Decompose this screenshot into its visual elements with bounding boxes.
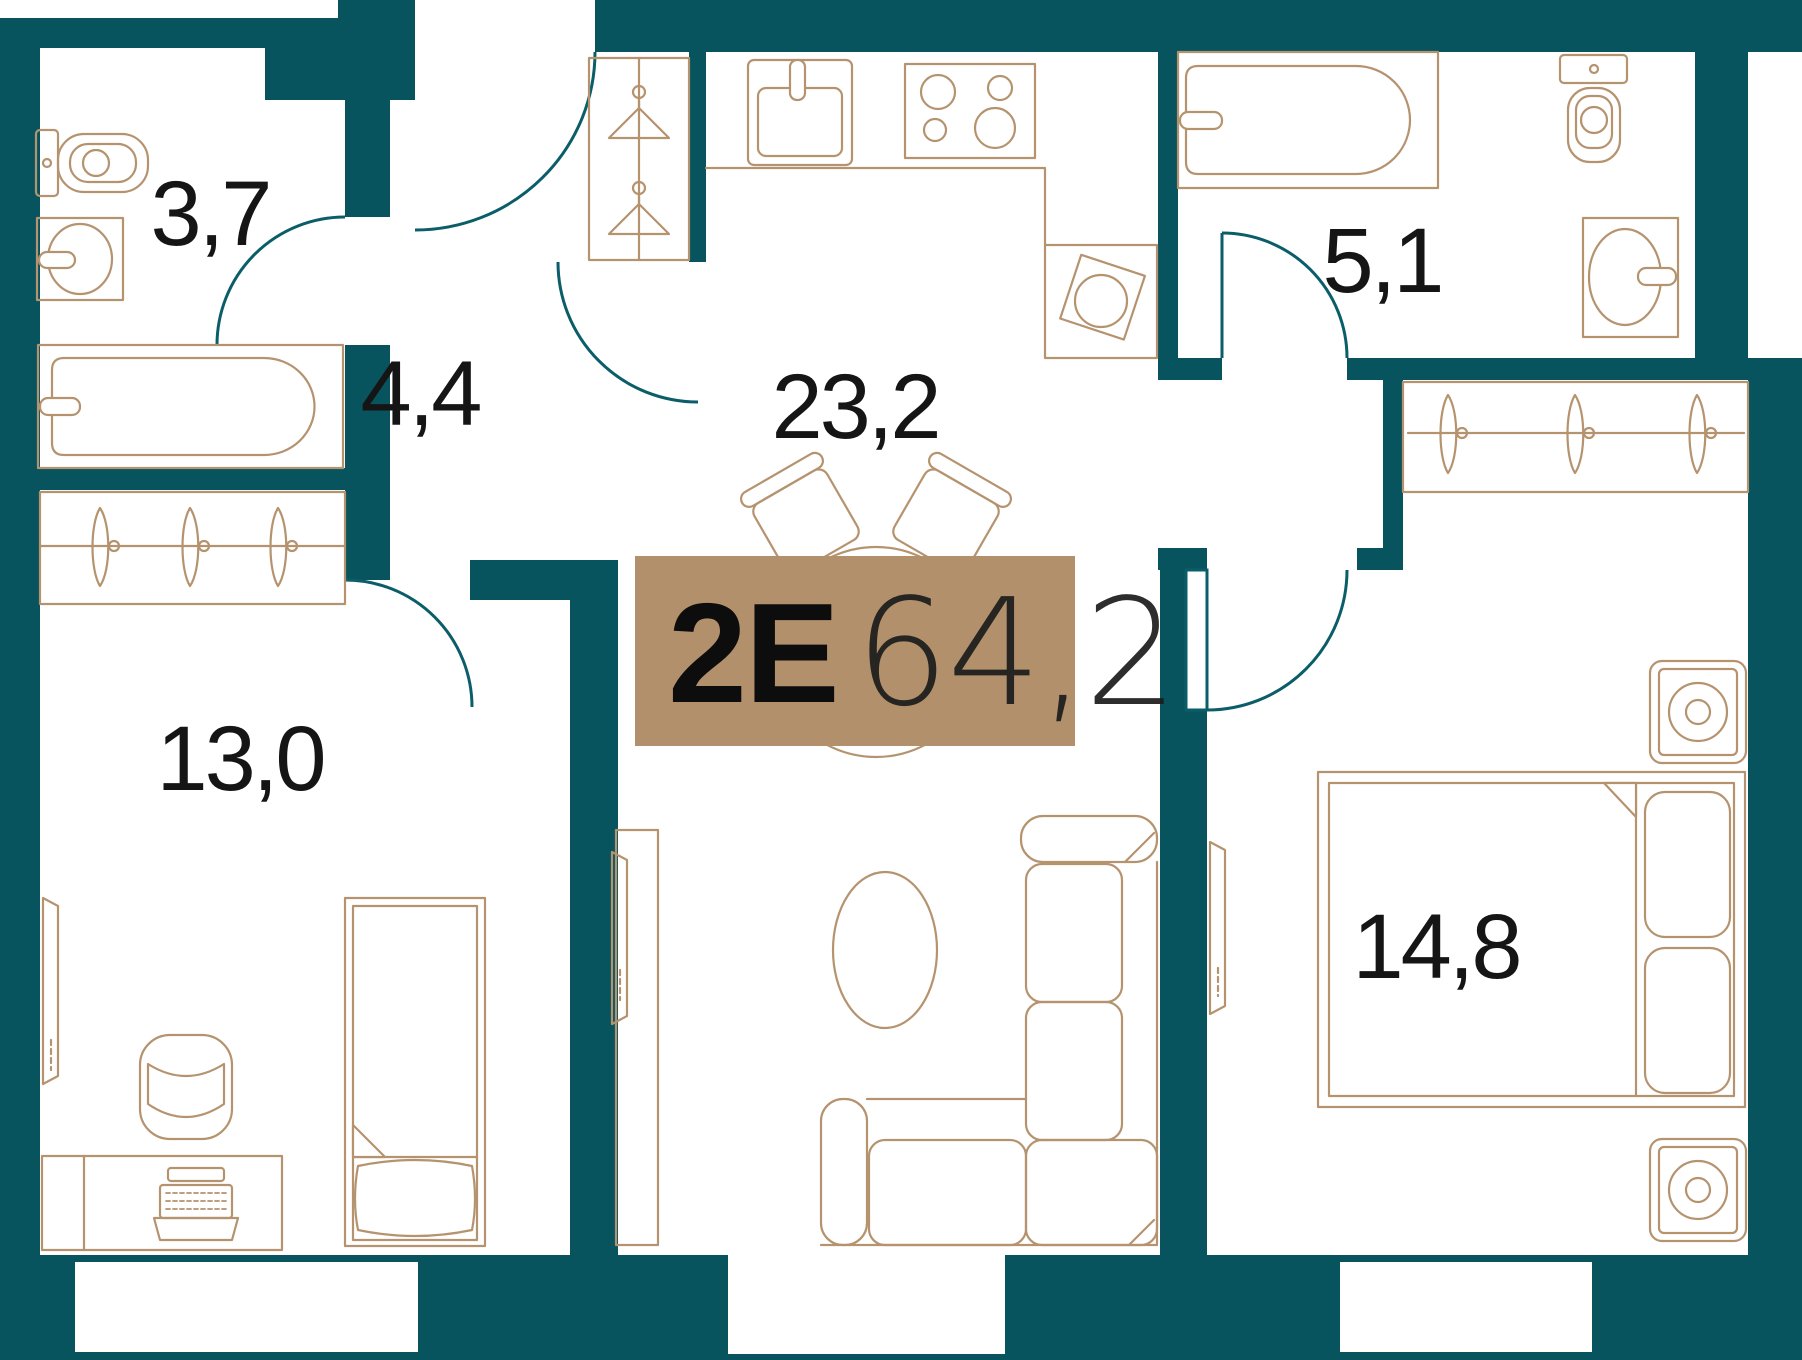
wall [1158, 358, 1222, 380]
wardrobe [1403, 382, 1748, 492]
entrance-door-arc [415, 52, 595, 230]
wall [1158, 0, 1802, 52]
wall [1748, 358, 1802, 1260]
room-label-hallway: 4,4 [361, 343, 481, 445]
wall [345, 100, 390, 217]
floor-plan: 2E 64,2 3,7 4,4 23,2 5,1 13,0 14,8 [0, 0, 1802, 1360]
wall [1347, 358, 1748, 380]
wall [1695, 52, 1748, 358]
total-area-value: 64,2 [855, 567, 1177, 739]
unit-type-label: 2E [668, 574, 838, 733]
room-label-bathroom-1: 3,7 [151, 163, 270, 265]
bathtub-icon [38, 345, 343, 468]
toilet-icon [1560, 55, 1627, 162]
window [728, 1254, 1005, 1354]
wall [0, 18, 345, 48]
speaker-icon [1650, 1139, 1746, 1241]
window [75, 1262, 418, 1352]
wall [0, 100, 40, 1260]
wardrobe [40, 492, 345, 604]
area-badge: 2E 64,2 [635, 556, 1177, 746]
tv-icon [43, 898, 58, 1084]
floor-plan-canvas: 2E 64,2 3,7 4,4 23,2 5,1 13,0 14,8 [0, 0, 1802, 1360]
kitchen-counter [706, 168, 1045, 245]
bathtub-icon [1178, 52, 1438, 188]
cabinet [616, 830, 658, 1245]
pillow [1645, 792, 1730, 937]
coffee-table [833, 872, 937, 1028]
tv-icon [1210, 842, 1225, 1014]
armchair [140, 1035, 232, 1139]
kitchen-door-arc [558, 262, 698, 402]
laptop-icon [154, 1168, 238, 1240]
window [1748, 52, 1802, 358]
room-label-kitchen-living: 23,2 [771, 356, 938, 458]
wall [338, 0, 415, 100]
room-label-bathroom-2: 5,1 [1323, 210, 1442, 312]
bedroom-2-door-leaf [1186, 570, 1207, 710]
wall [595, 0, 1158, 52]
sink-icon [1583, 218, 1678, 337]
wall [1357, 548, 1403, 570]
desk [42, 1156, 282, 1250]
wall [265, 48, 345, 100]
wall [570, 560, 618, 1260]
room-label-bedroom-2: 14,8 [1352, 896, 1519, 998]
bed [345, 898, 485, 1246]
wall [0, 48, 40, 100]
speaker-icon [1650, 661, 1746, 763]
pillow [1645, 948, 1730, 1093]
toilet-icon [36, 130, 148, 196]
bedroom-2-door-arc [1207, 570, 1347, 710]
sink-icon [37, 218, 123, 300]
window [1340, 1262, 1592, 1352]
washing-machine-icon [1045, 245, 1157, 358]
stove-icon [905, 64, 1035, 158]
pillow [355, 1160, 475, 1236]
wardrobe [589, 58, 689, 260]
wall [1383, 380, 1403, 550]
sofa [821, 816, 1157, 1245]
wall [0, 468, 390, 490]
kitchen-sink-icon [748, 60, 852, 165]
wall [1158, 52, 1178, 358]
room-label-bedroom-1: 13,0 [156, 708, 323, 810]
bedroom-1-door-arc [345, 580, 472, 707]
wall [689, 52, 706, 262]
